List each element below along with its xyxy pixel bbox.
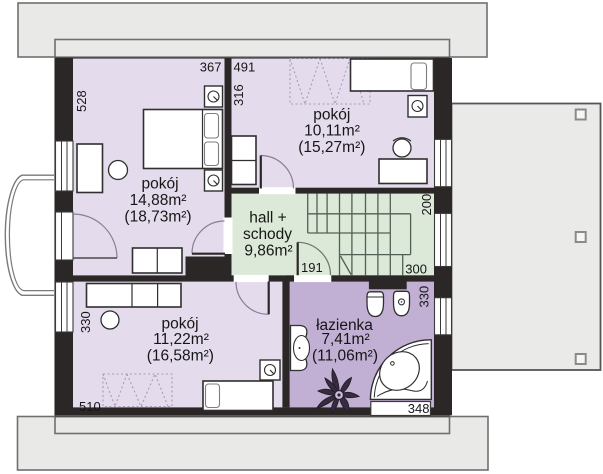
svg-text:(11,06m²): (11,06m²) (312, 347, 378, 364)
svg-text:348: 348 (408, 401, 430, 416)
svg-text:330: 330 (78, 311, 93, 333)
svg-text:schody: schody (243, 226, 292, 243)
svg-text:hall +: hall + (249, 210, 287, 227)
svg-text:pokój: pokój (141, 176, 178, 193)
svg-text:191: 191 (301, 260, 323, 275)
svg-text:(15,27m²): (15,27m²) (298, 139, 365, 156)
svg-text:pokój: pokój (161, 316, 198, 333)
svg-text:(16,58m²): (16,58m²) (147, 348, 214, 365)
svg-text:300: 300 (405, 262, 427, 277)
svg-text:510: 510 (79, 399, 101, 414)
svg-text:14,88m²: 14,88m² (130, 192, 187, 209)
svg-text:7,41m²: 7,41m² (321, 331, 369, 348)
svg-text:330: 330 (417, 286, 432, 308)
svg-text:(18,73m²): (18,73m²) (124, 209, 191, 226)
svg-text:9,86m²: 9,86m² (244, 243, 292, 260)
svg-text:11,22m²: 11,22m² (153, 331, 209, 348)
svg-text:528: 528 (74, 90, 89, 112)
svg-text:367: 367 (200, 60, 222, 75)
svg-text:pokój: pokój (313, 107, 350, 124)
svg-text:316: 316 (231, 84, 246, 106)
svg-text:10,11m²: 10,11m² (304, 123, 360, 140)
svg-text:491: 491 (234, 60, 256, 75)
svg-text:200: 200 (419, 194, 434, 216)
